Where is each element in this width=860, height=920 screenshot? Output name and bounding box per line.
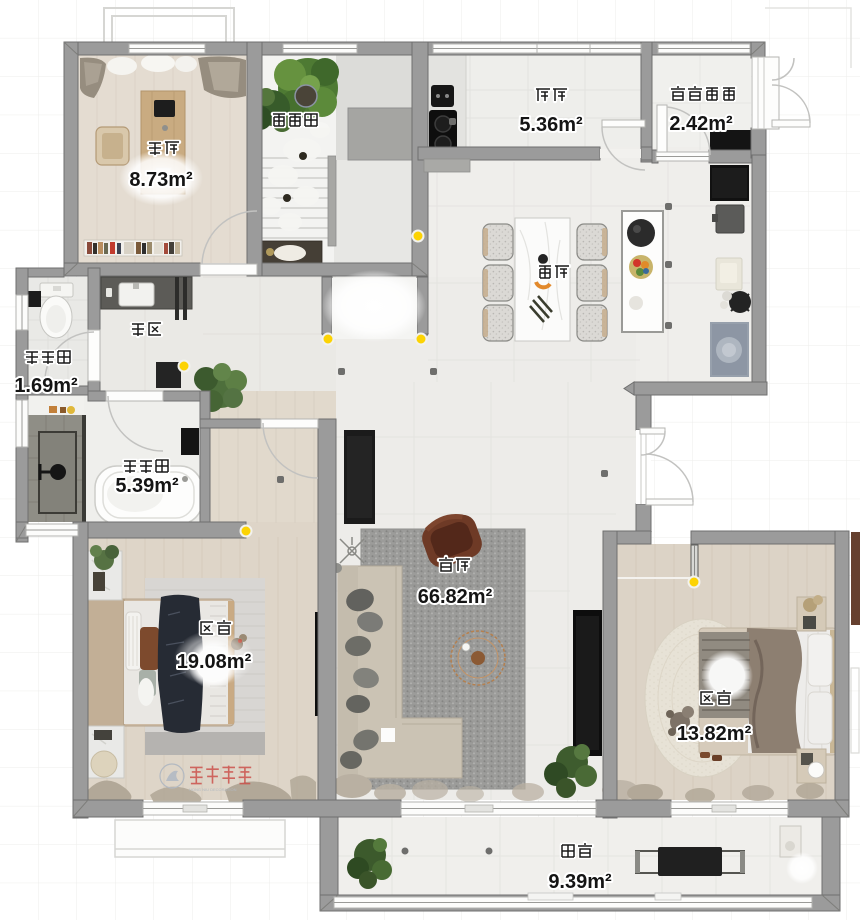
svg-text:19.08m²: 19.08m² xyxy=(177,651,252,673)
svg-text:2.42m²: 2.42m² xyxy=(669,113,733,135)
svg-text:13.82m²: 13.82m² xyxy=(677,723,752,745)
svg-text:HONG NIU DECORATION: HONG NIU DECORATION xyxy=(189,787,237,792)
svg-text:8.73m²: 8.73m² xyxy=(129,169,193,191)
svg-text:5.39m²: 5.39m² xyxy=(115,475,179,497)
svg-text:9.39m²: 9.39m² xyxy=(548,871,612,893)
svg-text:66.82m²: 66.82m² xyxy=(418,586,493,608)
svg-text:5.36m²: 5.36m² xyxy=(519,114,583,136)
svg-text:1.69m²: 1.69m² xyxy=(14,375,78,397)
